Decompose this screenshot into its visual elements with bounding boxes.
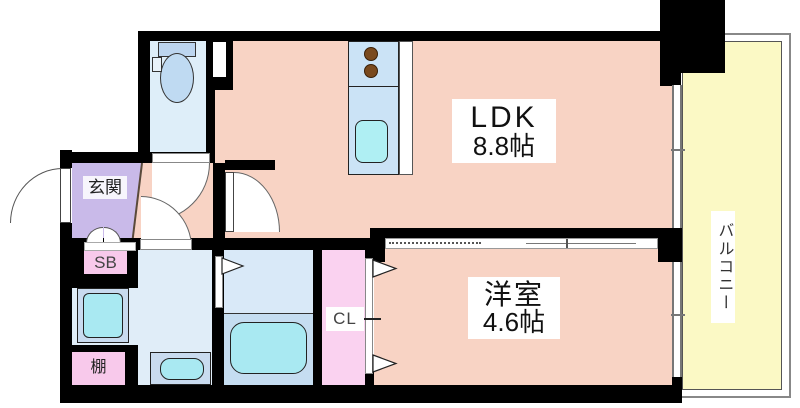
ldk-window xyxy=(672,85,682,228)
entrance-door-leaf xyxy=(60,168,71,223)
wall-pillar xyxy=(660,0,725,73)
wall-ldk-yoshitsu xyxy=(370,228,672,238)
kitchen-counter-edge xyxy=(399,41,413,175)
niche-recess xyxy=(213,42,226,77)
shelf-label: 棚 xyxy=(90,360,106,377)
kitchen-burner-2 xyxy=(364,64,378,78)
wall-shelf-top xyxy=(72,345,138,352)
shoe-box-label: SB xyxy=(94,254,117,272)
yoshitsu-window xyxy=(672,262,682,377)
sliding-door-tick xyxy=(566,239,568,248)
entrance-door-swing xyxy=(10,168,63,223)
bathtub xyxy=(230,322,307,374)
wall-hall-right xyxy=(213,163,225,238)
wall-under-niche xyxy=(225,160,275,170)
ldk-door-leaf xyxy=(225,172,234,232)
washing-machine xyxy=(77,288,129,343)
sliding-door xyxy=(385,238,658,249)
wall-bath-closet xyxy=(313,250,322,385)
wall-bottom xyxy=(60,385,682,403)
yoshitsu-area: 4.6帖 xyxy=(483,309,545,335)
bathroom-door-arrow xyxy=(221,257,245,275)
yoshitsu-label: 洋室 4.6帖 xyxy=(468,277,560,339)
ldk-name: LDK xyxy=(470,103,537,133)
kitchen-sink xyxy=(355,120,388,163)
wall-entry-stub xyxy=(60,150,72,168)
toilet-door-leaf xyxy=(152,153,210,163)
shoe-box: SB xyxy=(84,251,127,274)
ldk-floor xyxy=(215,41,672,238)
closet-door-arrow-top xyxy=(372,259,398,278)
shelf-box: 棚 xyxy=(72,352,125,385)
wall-toilet-left xyxy=(138,31,150,163)
toilet-paper-holder xyxy=(152,57,162,72)
vanity-sink xyxy=(150,352,211,385)
wall-shelf-right xyxy=(125,352,138,385)
kitchen-burner-1 xyxy=(364,47,378,61)
closet-label-box: CL xyxy=(326,307,364,331)
closet-door-arrow-bottom xyxy=(372,354,398,373)
closet-label-dash xyxy=(364,318,381,320)
balcony-name: バルコニー xyxy=(715,222,732,312)
genkan-label: 玄関 xyxy=(83,176,127,199)
ldk-area: 8.8帖 xyxy=(473,133,535,159)
wall-slider-stub-right xyxy=(658,228,682,262)
ldk-label: LDK 8.8帖 xyxy=(452,99,556,163)
floor-plan: SB 棚 CL LDK 8.8帖 洋室 4.6帖 バルコニー 玄関 xyxy=(0,0,800,408)
toilet-bowl xyxy=(160,53,194,103)
sliding-door-rail-dotted xyxy=(389,242,481,244)
wall-top xyxy=(140,31,672,41)
washroom-door-leaf xyxy=(140,239,192,250)
wall-right-bottom-corner xyxy=(672,377,682,403)
sliding-door-rail-solid xyxy=(526,243,636,244)
genkan-name: 玄関 xyxy=(88,179,122,197)
shoebox-front xyxy=(84,242,136,251)
balcony-label: バルコニー xyxy=(711,211,735,323)
closet-label: CL xyxy=(333,310,357,328)
yoshitsu-name: 洋室 xyxy=(484,281,544,309)
